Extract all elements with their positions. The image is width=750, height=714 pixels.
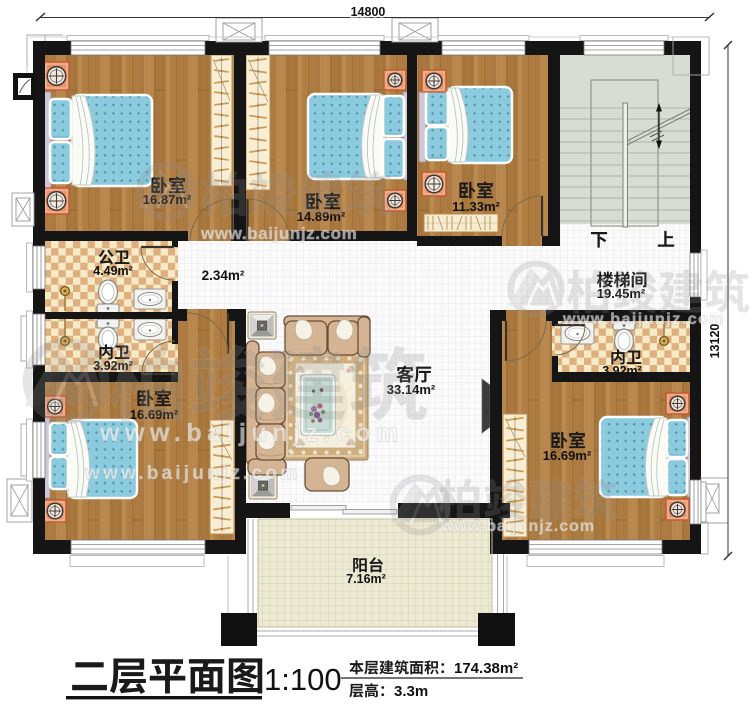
svg-text:4.49m²: 4.49m² xyxy=(93,264,133,278)
svg-text:16.69m²: 16.69m² xyxy=(543,448,592,463)
svg-text:3.3m: 3.3m xyxy=(394,683,428,700)
svg-text:174.38m²: 174.38m² xyxy=(454,660,518,677)
svg-text:www.baijunjz.com: www.baijunjz.com xyxy=(99,419,404,447)
svg-text:3.92m²: 3.92m² xyxy=(602,364,642,378)
svg-text:www.baijunjz.com: www.baijunjz.com xyxy=(200,224,357,243)
svg-text:1:100: 1:100 xyxy=(264,662,342,697)
svg-text:2.34m²: 2.34m² xyxy=(202,268,245,283)
svg-text:13120: 13120 xyxy=(708,324,722,359)
svg-text:11.33m²: 11.33m² xyxy=(452,199,500,214)
svg-text:7.16m²: 7.16m² xyxy=(346,572,386,586)
svg-text:www.baijunjz.com: www.baijunjz.com xyxy=(562,311,725,328)
svg-text:www.baijunjz.com: www.baijunjz.com xyxy=(84,463,300,484)
svg-text:14800: 14800 xyxy=(351,5,386,19)
svg-text:www.baijunjz.com: www.baijunjz.com xyxy=(440,518,595,535)
